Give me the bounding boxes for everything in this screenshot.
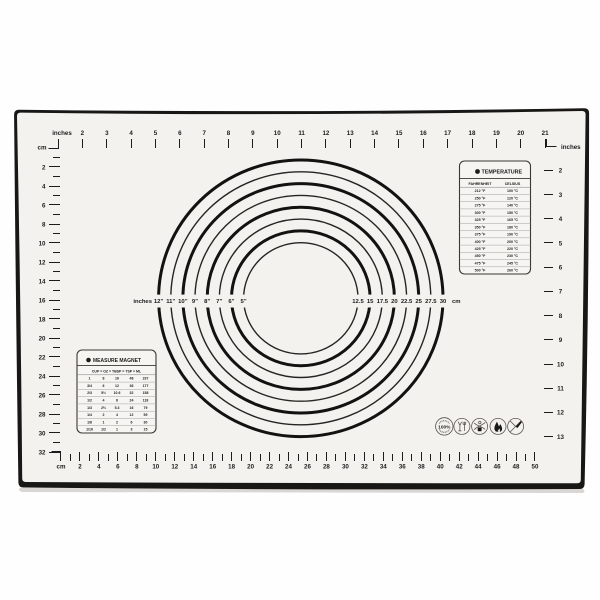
svg-text:15: 15 <box>396 130 403 137</box>
svg-text:1/16: 1/16 <box>86 428 93 432</box>
svg-text:38: 38 <box>418 464 425 471</box>
svg-text:cm: cm <box>452 299 461 305</box>
svg-text:7: 7 <box>202 130 206 137</box>
svg-text:177: 177 <box>143 384 149 388</box>
svg-text:26: 26 <box>304 464 311 471</box>
svg-text:18: 18 <box>228 464 235 471</box>
svg-text:48: 48 <box>130 377 134 381</box>
svg-text:2: 2 <box>559 168 563 175</box>
svg-text:25: 25 <box>415 299 422 305</box>
svg-text:40: 40 <box>437 464 444 471</box>
svg-text:250 °F: 250 °F <box>475 196 486 200</box>
svg-text:12: 12 <box>171 464 178 471</box>
svg-text:100 °C: 100 °C <box>507 189 518 193</box>
svg-text:12: 12 <box>115 384 119 388</box>
svg-text:26: 26 <box>39 392 46 399</box>
svg-text:30: 30 <box>440 299 447 305</box>
svg-text:230 °C: 230 °C <box>507 254 518 258</box>
svg-text:6: 6 <box>559 265 563 272</box>
svg-text:30: 30 <box>39 430 46 437</box>
svg-text:1/8: 1/8 <box>87 420 92 424</box>
svg-text:3: 3 <box>131 428 133 432</box>
svg-text:6: 6 <box>178 130 182 137</box>
svg-text:237: 237 <box>143 377 149 381</box>
svg-text:190 °C: 190 °C <box>507 233 518 237</box>
svg-text:100%: 100% <box>438 424 451 430</box>
svg-text:4: 4 <box>559 216 563 223</box>
svg-text:475 °F: 475 °F <box>475 261 486 265</box>
svg-text:inches: inches <box>133 299 152 305</box>
svg-text:32: 32 <box>361 464 368 471</box>
svg-text:36: 36 <box>130 384 134 388</box>
svg-text:22: 22 <box>266 464 273 471</box>
svg-text:120 °C: 120 °C <box>507 196 518 200</box>
svg-text:16: 16 <box>209 464 216 471</box>
svg-text:22: 22 <box>39 354 46 361</box>
svg-text:18: 18 <box>469 130 476 137</box>
svg-text:10: 10 <box>152 464 159 471</box>
svg-text:1/2: 1/2 <box>87 399 92 403</box>
svg-text:6: 6 <box>42 202 46 209</box>
svg-text:4: 4 <box>97 464 101 471</box>
svg-text:5⅓: 5⅓ <box>101 391 106 395</box>
svg-text:425 °F: 425 °F <box>475 247 486 251</box>
svg-text:12: 12 <box>557 410 564 417</box>
svg-text:150 °C: 150 °C <box>507 211 518 215</box>
svg-text:CELSIUS: CELSIUS <box>505 182 521 186</box>
svg-text:59: 59 <box>144 413 148 417</box>
svg-text:50: 50 <box>532 464 539 471</box>
svg-text:8: 8 <box>227 130 231 137</box>
svg-text:36: 36 <box>399 464 406 471</box>
svg-text:2: 2 <box>103 413 105 417</box>
svg-text:2⅔: 2⅔ <box>101 406 106 410</box>
svg-text:1: 1 <box>103 420 105 424</box>
svg-text:245 °C: 245 °C <box>507 261 518 265</box>
svg-text:5.3: 5.3 <box>115 406 120 410</box>
svg-text:14: 14 <box>371 130 378 137</box>
svg-text:CUP = OZ = TBSP = TSP = ML: CUP = OZ = TBSP = TSP = ML <box>92 369 142 373</box>
svg-text:11: 11 <box>298 130 305 137</box>
svg-text:16: 16 <box>420 130 427 137</box>
svg-text:14: 14 <box>39 278 46 285</box>
svg-text:22.5: 22.5 <box>401 299 413 305</box>
svg-text:16: 16 <box>115 377 119 381</box>
svg-text:12: 12 <box>322 130 329 137</box>
svg-text:12”: 12” <box>154 299 164 305</box>
svg-text:TEMPERATURE: TEMPERATURE <box>482 170 523 176</box>
svg-text:3/4: 3/4 <box>87 384 92 388</box>
svg-text:inches: inches <box>561 144 581 151</box>
svg-text:400 °F: 400 °F <box>475 240 486 244</box>
svg-text:8: 8 <box>135 464 139 471</box>
svg-text:30: 30 <box>342 464 349 471</box>
svg-text:350 °F: 350 °F <box>475 225 486 229</box>
svg-text:375 °F: 375 °F <box>475 233 486 237</box>
svg-text:6”: 6” <box>228 299 234 305</box>
svg-text:MEASURE MAGNET: MEASURE MAGNET <box>93 358 141 364</box>
svg-text:24: 24 <box>285 464 292 471</box>
svg-text:9: 9 <box>559 337 563 344</box>
svg-text:5: 5 <box>154 130 158 137</box>
svg-text:16: 16 <box>39 297 46 304</box>
svg-text:450 °F: 450 °F <box>475 254 486 258</box>
svg-text:1/3: 1/3 <box>87 406 92 410</box>
svg-text:21: 21 <box>542 130 549 137</box>
svg-text:FAHRENHEIT: FAHRENHEIT <box>469 182 493 186</box>
svg-text:12: 12 <box>130 413 134 417</box>
svg-text:42: 42 <box>456 464 463 471</box>
svg-text:6: 6 <box>131 420 133 424</box>
svg-text:46: 46 <box>494 464 501 471</box>
svg-text:19: 19 <box>493 130 500 137</box>
svg-text:11: 11 <box>557 386 564 393</box>
svg-text:10.6: 10.6 <box>114 391 121 395</box>
svg-text:17.5: 17.5 <box>377 299 389 305</box>
svg-text:32: 32 <box>39 449 46 456</box>
svg-text:27.5: 27.5 <box>425 299 437 305</box>
svg-text:4: 4 <box>103 399 105 403</box>
svg-text:14: 14 <box>190 464 197 471</box>
svg-text:4: 4 <box>116 413 118 417</box>
svg-text:cm: cm <box>57 464 66 471</box>
svg-text:4: 4 <box>42 183 46 190</box>
svg-text:325 °F: 325 °F <box>475 218 486 222</box>
svg-text:3: 3 <box>559 192 563 199</box>
svg-text:1: 1 <box>116 428 118 432</box>
svg-text:2: 2 <box>42 164 46 171</box>
svg-text:30: 30 <box>144 420 148 424</box>
svg-text:18: 18 <box>39 316 46 323</box>
svg-text:8”: 8” <box>204 299 210 305</box>
svg-text:9”: 9” <box>192 299 198 305</box>
svg-text:140 °C: 140 °C <box>507 204 518 208</box>
svg-text:4: 4 <box>129 130 133 137</box>
svg-text:16: 16 <box>130 406 134 410</box>
svg-text:118: 118 <box>143 399 149 403</box>
svg-text:275 °F: 275 °F <box>475 204 486 208</box>
svg-text:10: 10 <box>39 240 46 247</box>
svg-text:17: 17 <box>444 130 451 137</box>
svg-text:5: 5 <box>559 240 563 247</box>
svg-text:11”: 11” <box>166 299 175 305</box>
svg-text:1: 1 <box>89 377 91 381</box>
svg-text:20: 20 <box>517 130 524 137</box>
svg-text:500 °F: 500 °F <box>475 269 486 273</box>
svg-text:7”: 7” <box>216 299 222 305</box>
svg-text:24: 24 <box>130 399 134 403</box>
svg-text:inches: inches <box>52 130 72 137</box>
svg-text:6: 6 <box>103 384 105 388</box>
svg-text:7: 7 <box>559 289 563 296</box>
svg-text:8: 8 <box>42 221 46 228</box>
svg-text:220 °C: 220 °C <box>507 247 518 251</box>
svg-text:20: 20 <box>247 464 254 471</box>
svg-text:212 °F: 212 °F <box>475 189 486 193</box>
svg-text:cm: cm <box>38 144 47 151</box>
svg-text:12.5: 12.5 <box>352 299 364 305</box>
svg-text:24: 24 <box>39 373 46 380</box>
svg-text:158: 158 <box>143 391 149 395</box>
svg-text:44: 44 <box>475 464 482 471</box>
svg-text:9: 9 <box>251 130 255 137</box>
svg-text:32: 32 <box>130 391 134 395</box>
svg-text:260 °C: 260 °C <box>507 269 518 273</box>
svg-text:10: 10 <box>557 361 564 368</box>
svg-text:34: 34 <box>380 464 387 471</box>
svg-text:13: 13 <box>557 434 564 441</box>
svg-text:79: 79 <box>144 406 148 410</box>
svg-text:2/3: 2/3 <box>87 391 92 395</box>
svg-text:165 °C: 165 °C <box>507 218 518 222</box>
svg-text:6: 6 <box>116 464 120 471</box>
svg-text:2: 2 <box>116 420 118 424</box>
svg-text:10”: 10” <box>178 299 188 305</box>
svg-text:20: 20 <box>39 335 46 342</box>
svg-text:20: 20 <box>391 299 398 305</box>
svg-text:28: 28 <box>323 464 330 471</box>
svg-text:48: 48 <box>513 464 520 471</box>
svg-text:200 °C: 200 °C <box>507 240 518 244</box>
svg-text:12: 12 <box>39 259 46 266</box>
svg-text:13: 13 <box>347 130 354 137</box>
svg-text:15: 15 <box>144 428 148 432</box>
svg-text:8: 8 <box>559 313 563 320</box>
svg-text:10: 10 <box>274 130 281 137</box>
svg-text:15: 15 <box>367 299 374 305</box>
svg-text:1/2: 1/2 <box>101 428 106 432</box>
svg-text:2: 2 <box>78 464 82 471</box>
svg-text:3: 3 <box>105 130 109 137</box>
svg-text:8: 8 <box>103 377 105 381</box>
svg-text:5”: 5” <box>240 299 246 305</box>
svg-text:8: 8 <box>116 399 118 403</box>
svg-text:2: 2 <box>81 130 85 137</box>
svg-text:300 °F: 300 °F <box>475 211 486 215</box>
svg-text:1/4: 1/4 <box>87 413 92 417</box>
svg-text:28: 28 <box>39 411 46 418</box>
svg-text:180 °C: 180 °C <box>507 225 518 229</box>
